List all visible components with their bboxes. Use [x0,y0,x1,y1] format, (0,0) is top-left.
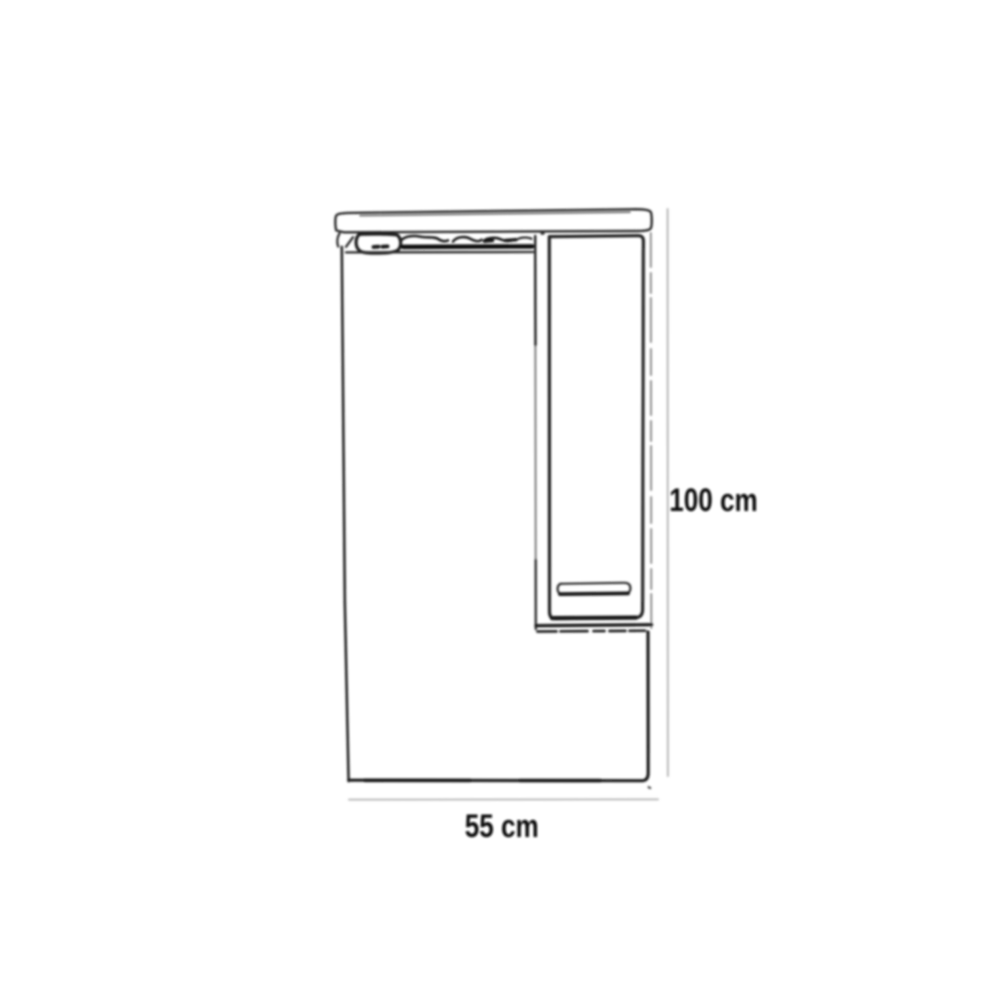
svg-text:55 cm: 55 cm [465,810,539,845]
svg-text:100 cm: 100 cm [669,484,757,519]
